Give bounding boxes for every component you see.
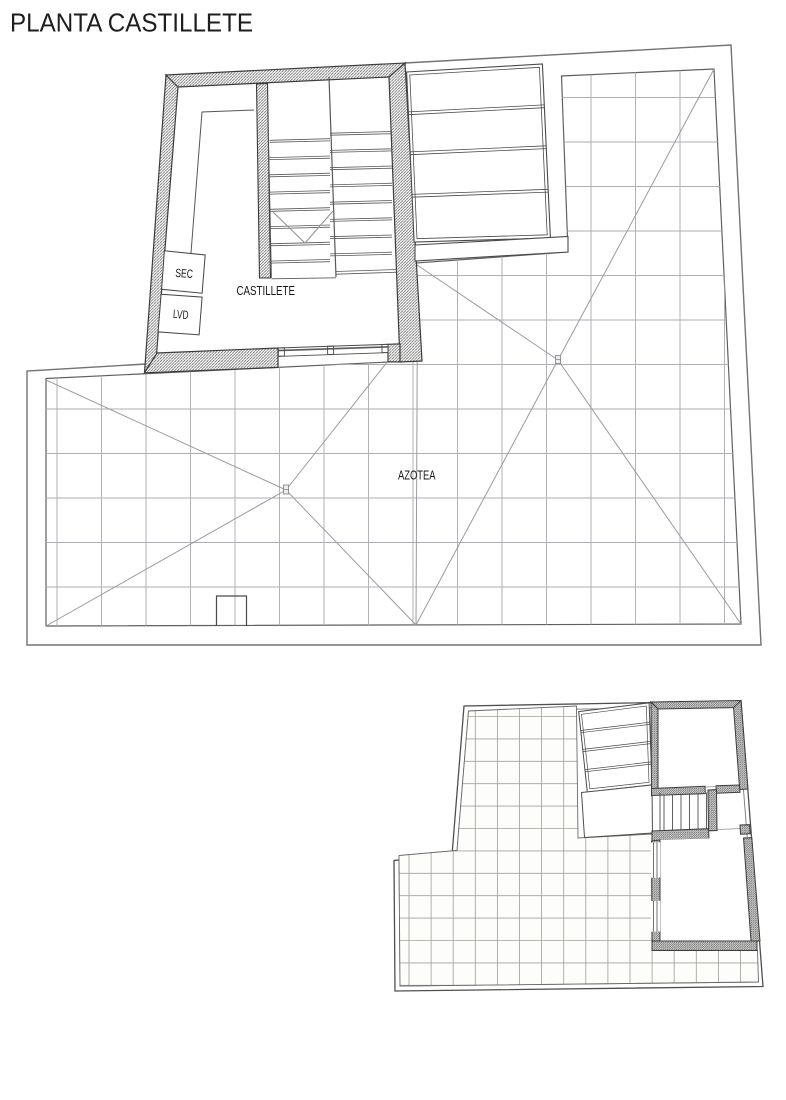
svg-text:LVD: LVD (172, 307, 189, 322)
svg-text:PLANTA CASTILLETE: PLANTA CASTILLETE (10, 8, 253, 38)
svg-text:AZOTEA: AZOTEA (398, 469, 436, 483)
svg-text:CASTILLETE: CASTILLETE (237, 283, 296, 298)
svg-text:SEC: SEC (175, 266, 194, 281)
